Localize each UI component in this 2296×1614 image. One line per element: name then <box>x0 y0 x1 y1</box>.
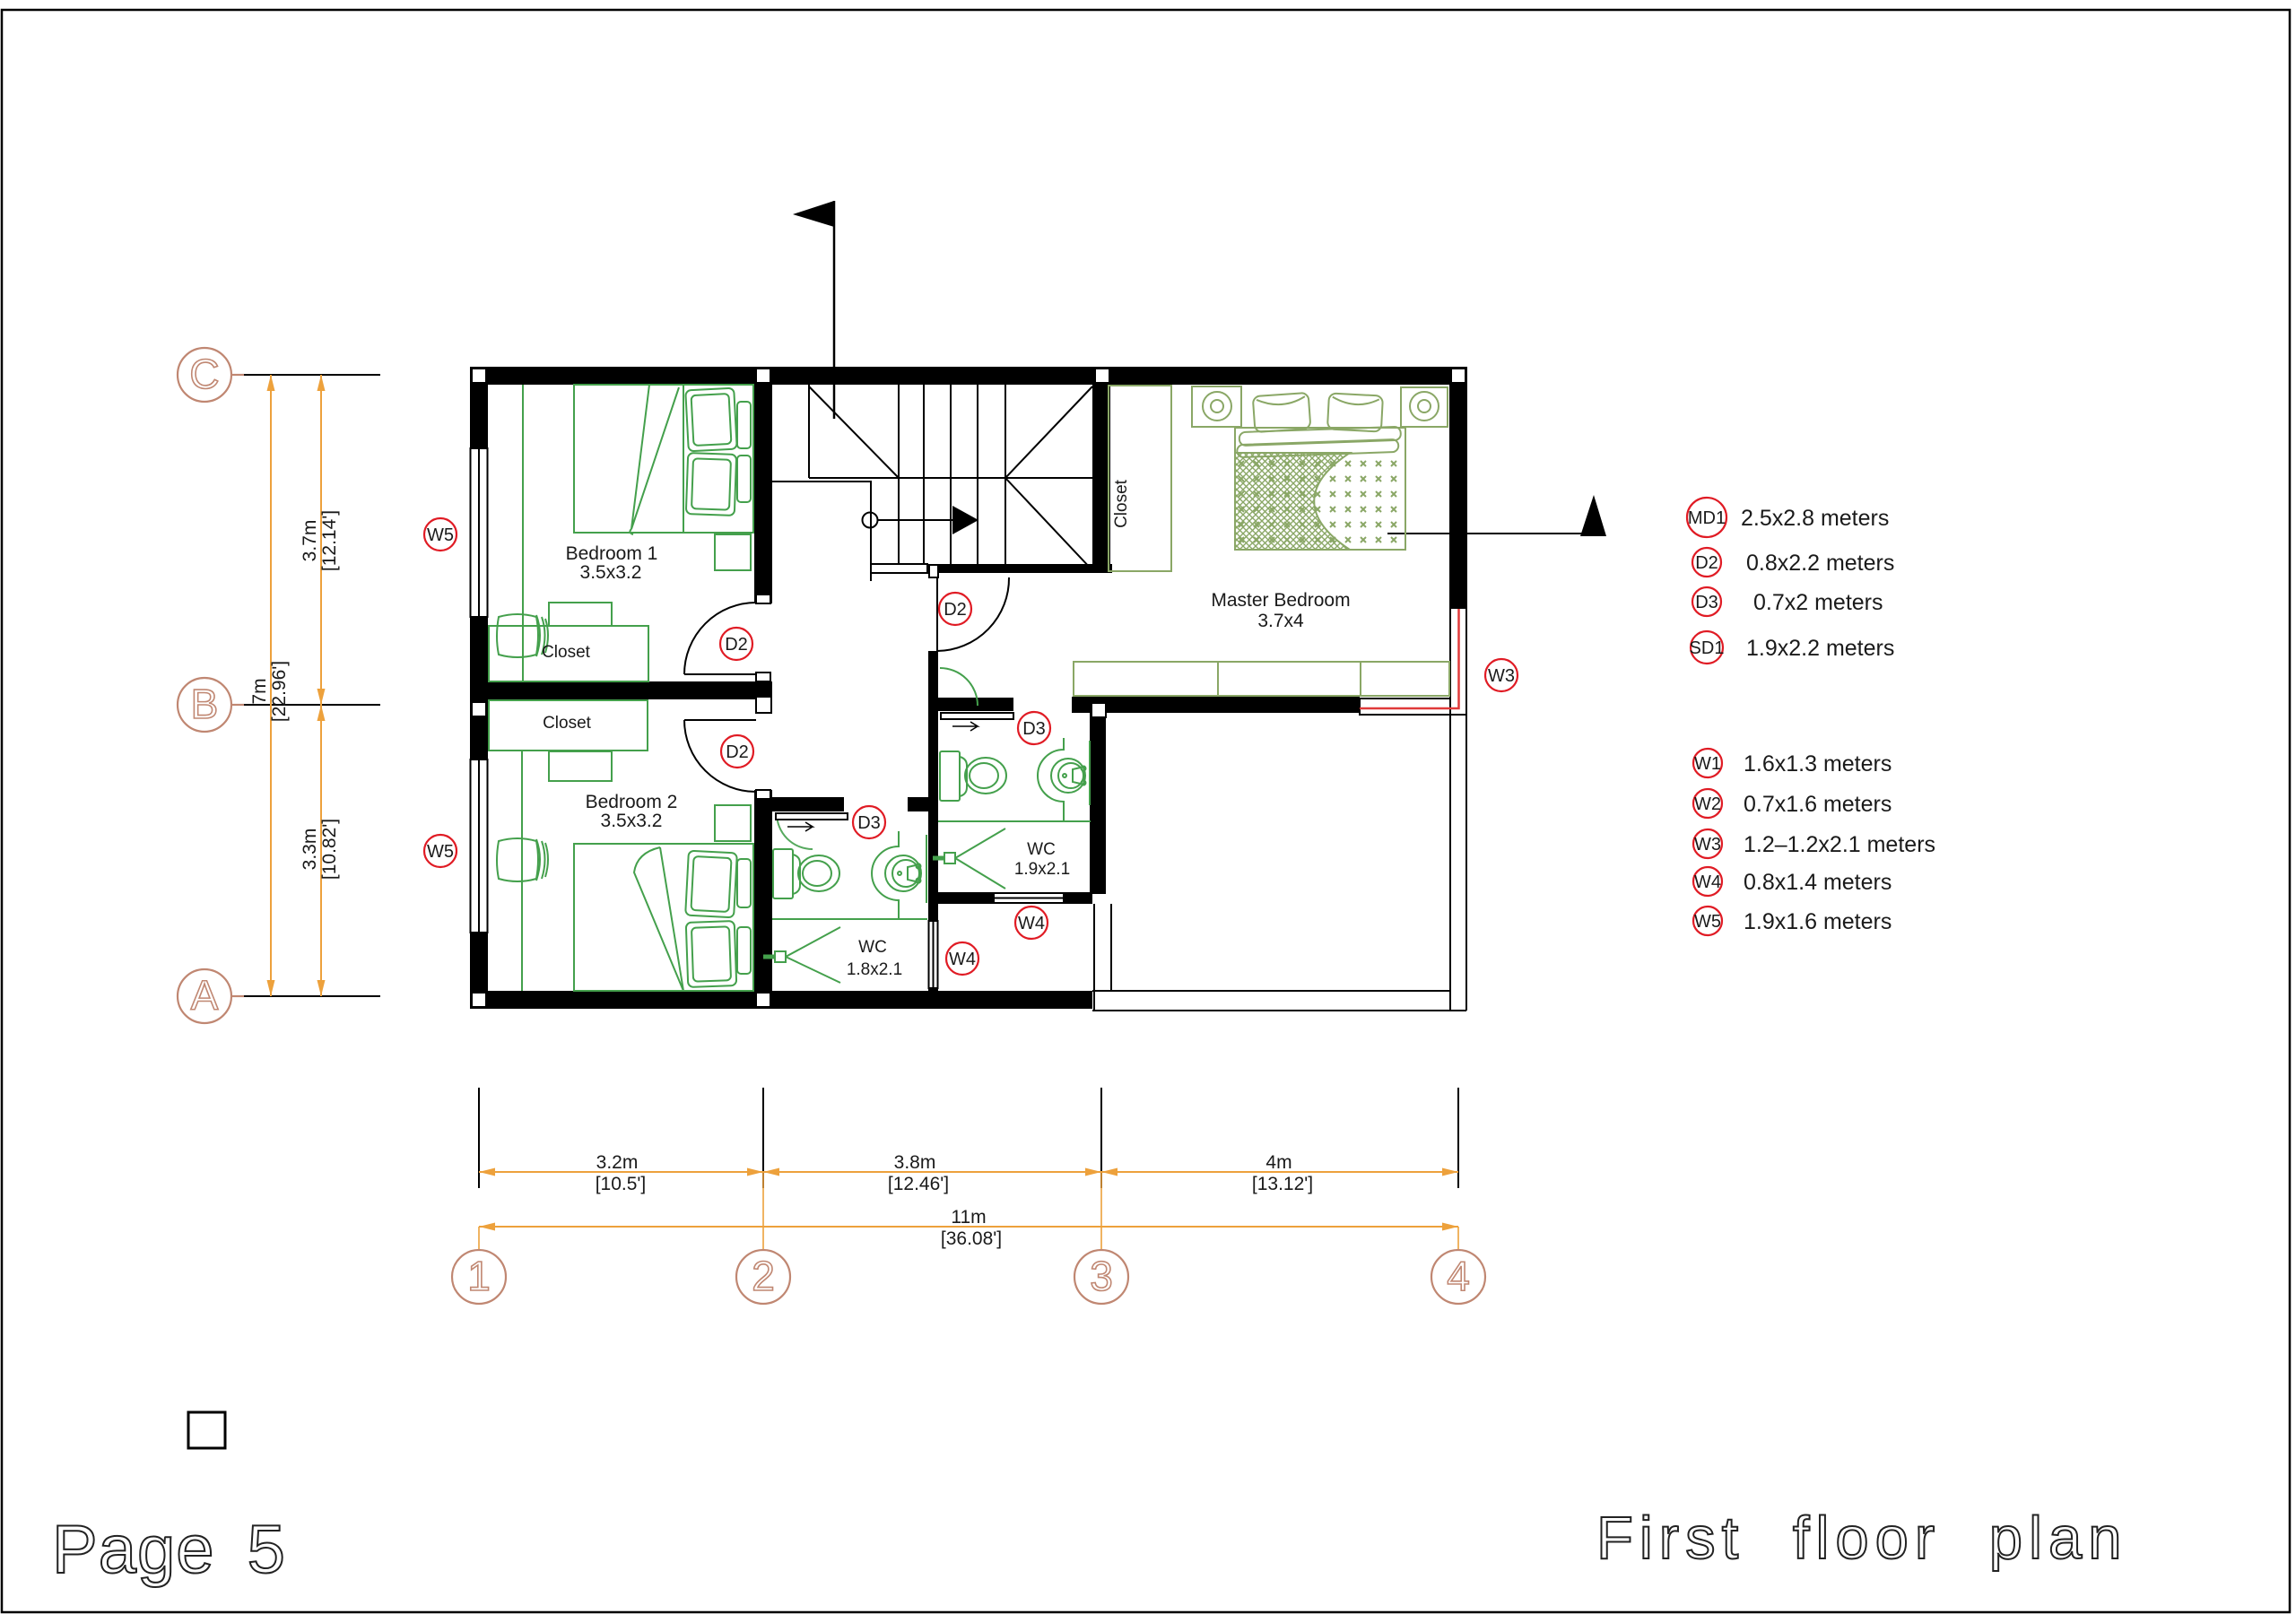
svg-text:11m: 11m <box>951 1207 986 1228</box>
svg-text:1: 1 <box>467 1253 491 1299</box>
svg-text:3.7x4: 3.7x4 <box>1257 611 1304 631</box>
svg-text:[36.08']: [36.08'] <box>941 1228 1002 1249</box>
svg-text:W5: W5 <box>427 842 454 862</box>
svg-text:D3: D3 <box>1695 593 1718 612</box>
svg-text:W5: W5 <box>427 525 454 545</box>
svg-text:3.8m: 3.8m <box>894 1152 936 1173</box>
svg-text:3: 3 <box>1090 1253 1113 1299</box>
svg-text:D2: D2 <box>725 635 748 655</box>
svg-text:First floor plan: First floor plan <box>1596 1505 2127 1572</box>
svg-text:WC: WC <box>858 938 887 957</box>
svg-text:7m: 7m <box>249 678 270 704</box>
svg-text:1.6x1.3 meters: 1.6x1.3 meters <box>1744 751 1892 777</box>
svg-text:1.9x1.6 meters: 1.9x1.6 meters <box>1744 909 1892 934</box>
svg-text:0.7x1.6 meters: 0.7x1.6 meters <box>1744 792 1892 817</box>
svg-text:3.2m: 3.2m <box>596 1152 639 1173</box>
svg-text:Closet: Closet <box>543 714 592 733</box>
svg-text:W3: W3 <box>1694 835 1721 855</box>
svg-text:W4: W4 <box>1694 872 1721 892</box>
svg-text:A: A <box>191 972 219 1019</box>
svg-text:3.5x3.2: 3.5x3.2 <box>580 562 642 583</box>
svg-text:SD1: SD1 <box>1690 638 1725 658</box>
svg-text:[10.82']: [10.82'] <box>319 819 340 880</box>
svg-text:D3: D3 <box>1022 719 1046 739</box>
svg-text:Bedroom 2: Bedroom 2 <box>586 792 678 812</box>
svg-text:B: B <box>191 681 219 727</box>
svg-text:2.5x2.8 meters: 2.5x2.8 meters <box>1741 506 1889 531</box>
svg-text:[12.14']: [12.14'] <box>319 510 340 571</box>
svg-text:[12.46']: [12.46'] <box>888 1174 949 1194</box>
svg-text:[22.96']: [22.96'] <box>269 661 290 722</box>
svg-text:[10.5']: [10.5'] <box>596 1174 647 1194</box>
svg-text:1.8x2.1: 1.8x2.1 <box>847 960 902 979</box>
svg-text:4: 4 <box>1447 1253 1470 1299</box>
svg-text:0.8x1.4 meters: 0.8x1.4 meters <box>1744 870 1892 895</box>
svg-text:W1: W1 <box>1694 754 1721 774</box>
svg-text:D2: D2 <box>726 742 749 762</box>
svg-text:W3: W3 <box>1488 666 1515 686</box>
svg-text:[13.12']: [13.12'] <box>1252 1174 1313 1194</box>
svg-text:D2: D2 <box>1695 553 1718 573</box>
svg-text:3.3m: 3.3m <box>300 829 320 871</box>
svg-text:W4: W4 <box>949 950 976 969</box>
svg-text:C: C <box>189 351 219 397</box>
svg-text:1.9x2.1: 1.9x2.1 <box>1014 860 1070 879</box>
svg-text:Closet: Closet <box>1112 479 1131 528</box>
svg-text:3.7m: 3.7m <box>300 520 320 562</box>
svg-text:3.5x3.2: 3.5x3.2 <box>601 811 663 831</box>
svg-text:D2: D2 <box>944 600 967 620</box>
svg-text:4m: 4m <box>1265 1152 1291 1173</box>
svg-text:Closet: Closet <box>542 643 591 662</box>
svg-text:0.8x2.2 meters: 0.8x2.2 meters <box>1746 551 1894 576</box>
svg-text:Page 5: Page 5 <box>52 1512 286 1588</box>
svg-text:D3: D3 <box>857 813 881 833</box>
svg-text:WC: WC <box>1027 840 1056 859</box>
svg-text:2: 2 <box>752 1253 775 1299</box>
svg-text:MD1: MD1 <box>1688 508 1726 528</box>
svg-text:1.9x2.2 meters: 1.9x2.2 meters <box>1746 636 1894 661</box>
svg-text:Bedroom 1: Bedroom 1 <box>566 543 658 564</box>
svg-text:W2: W2 <box>1694 794 1721 814</box>
svg-text:W5: W5 <box>1694 912 1721 932</box>
svg-text:0.7x2 meters: 0.7x2 meters <box>1753 590 1883 615</box>
svg-text:Master Bedroom: Master Bedroom <box>1211 590 1350 611</box>
svg-text:W4: W4 <box>1018 914 1045 933</box>
svg-text:1.2–1.2x2.1 meters: 1.2–1.2x2.1 meters <box>1744 832 1935 857</box>
